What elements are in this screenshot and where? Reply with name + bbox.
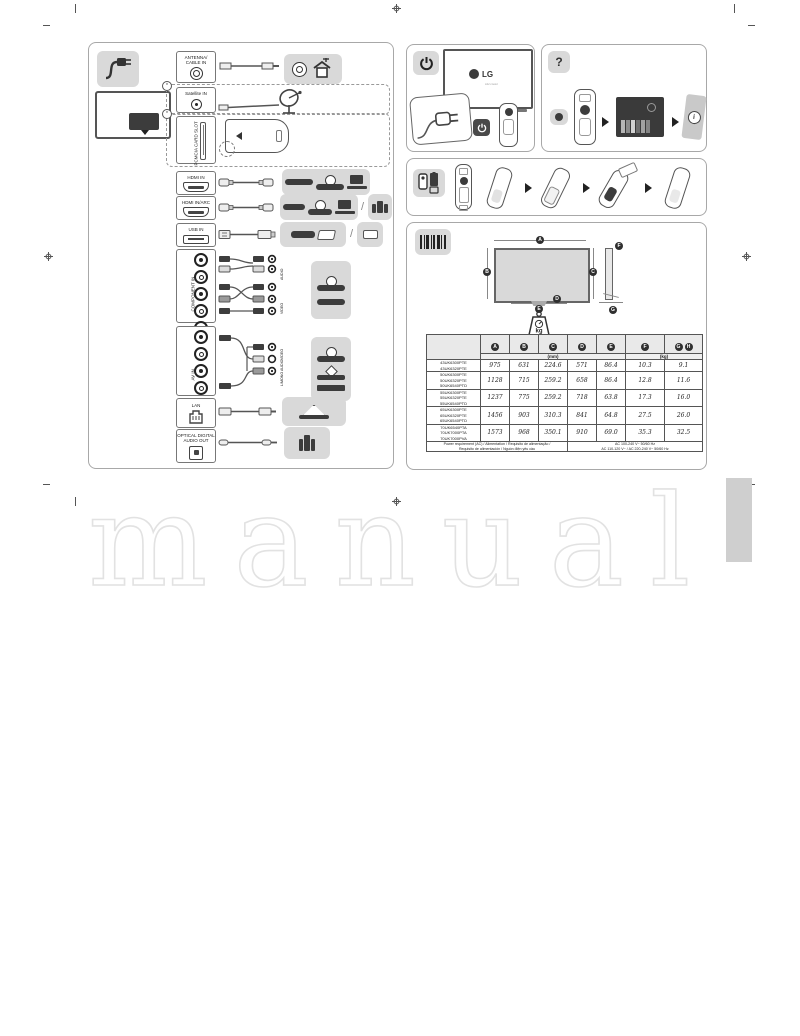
dimension-value-cell: 1456 [481,407,510,425]
router-icon [299,405,329,419]
disc-player-icon [317,347,345,362]
tv-front-diagram [494,248,590,303]
hdmi-cable-icon [218,176,278,188]
component-in-port: COMPONENT IN [176,249,216,323]
component-cables-icon [217,253,309,317]
av-in-port: AV IN [176,326,216,396]
or-slash: / [350,228,353,240]
model-names-cell: 43UK6300PTE 43UK6320PTE [427,360,481,372]
step-arrow-icon [645,183,652,193]
dim-column-header: B [510,335,539,354]
hdmi-arc-devices-chip [280,194,358,220]
dimension-value-cell: 69.0 [597,424,626,442]
power-requirement-value: AC 100-240 V~ 50/60 Hz AC 110-120 V~ / A… [568,442,703,452]
model-names-cell: 50UK6300PTE 50UK6320PTE 50UK6540PTD [427,372,481,390]
dim-column-header: GH [665,335,703,354]
audio-system-chip [368,194,392,220]
remote-button-chip [550,109,568,125]
settop-box-icon [285,179,313,185]
dimension-value-cell: 631 [510,360,539,372]
dimension-value-cell: 1237 [481,389,510,407]
model-names-cell: 70UK6540PTA 70UK7000PTA 70UK7000PVA [427,424,481,442]
usb-devices-chip [280,222,346,247]
power-requirement-label: Power requirement (AC) / Alimentation / … [427,442,568,452]
dimension-value-cell: 224.6 [539,360,568,372]
battery-step-4-icon [663,165,692,210]
dimension-value-cell: 571 [568,360,597,372]
dim-column-header: F [626,335,665,354]
dim-letter-g: G [609,306,617,314]
dimension-value-cell: 1128 [481,372,510,390]
cable-plug-icon [97,51,139,87]
registration-mark-left [44,252,53,261]
dim-letter-d: D [553,295,561,303]
remote-control-icon [499,103,518,147]
disc-player-icon [317,276,345,291]
dimension-value-cell: 12.8 [626,372,665,390]
rca-jack [194,347,208,361]
dimensions-table: ABCDEFGH(mm)(kg)43UK6300PTE 43UK6320PTE9… [426,334,703,452]
crop-dash-left-bottom [43,484,50,485]
card-detail-circle [219,141,235,157]
rca-jack [194,304,208,318]
pcmcia-label: PCMCIA CARD SLOT [194,116,199,166]
rca-jack [194,330,208,344]
speakers-icon [372,201,388,213]
specifications-barcode-icon [415,229,451,255]
dim-column-header: C [539,335,568,354]
remote-power-button-icon [473,119,490,136]
dimension-row: 50UK6300PTE 50UK6320PTE 50UK6540PTD11287… [427,372,703,390]
coax-cable-icon [219,59,281,73]
rca-jack [194,364,208,378]
tv-rear-icon [95,91,171,139]
dimension-value-cell: 16.0 [665,389,703,407]
vcr-icon [317,385,345,391]
component-audio-label: AUDIO [280,250,284,280]
tv-screen-colorbars-icon [616,97,664,137]
lg-logo-sub: Life's Good [485,83,498,86]
pcmcia-card-slot-port: PCMCIA CARD SLOT [176,116,216,164]
dimension-value-cell: 975 [481,360,510,372]
dimension-value-cell: 63.8 [597,389,626,407]
model-names-cell: 55UK6300PTE 55UK6320PTE 55UK6540PTD [427,389,481,407]
optical-cable-icon [218,437,280,447]
registration-mark-bottom [392,497,401,506]
dimension-value-cell: 35.3 [626,424,665,442]
help-icon: ? [548,51,570,73]
dimension-value-cell: 310.3 [539,407,568,425]
lan-port: LAN [176,398,216,428]
hdmi-in-label: HDMI IN [187,175,204,180]
dimension-value-cell: 718 [568,389,597,407]
memory-card-icon [317,230,336,240]
tv-side-diagram [605,248,613,300]
registration-mark-right [742,252,751,261]
dimensions-panel: A B C D E kg F G ABCDEFGH(mm)(kg)43UK630… [406,222,707,470]
remote-front-icon [455,164,472,210]
settop-box-icon [317,299,345,305]
satellite-in-port: Satellite IN [176,87,216,113]
satellite-cable-and-dish-icon [217,89,317,115]
av-devices-chip [311,337,351,401]
lan-label: LAN [192,403,201,408]
dimension-row: 70UK6540PTA 70UK7000PTA 70UK7000PVA15739… [427,424,703,442]
hdmi-devices-chip [282,169,370,195]
dimension-value-cell: 259.2 [539,389,568,407]
watermark-block [726,478,752,562]
step-arrow-icon [525,183,532,193]
optical-audio-out-port: OPTICAL DIGITAL AUDIO OUT [176,429,216,463]
optional-marker-1: * [162,81,172,91]
battery-install-panel [406,158,707,216]
dimension-row: 55UK6300PTE 55UK6320PTE 55UK6540PTD12377… [427,389,703,407]
usb-in-port: USB IN [176,223,216,247]
dimension-value-cell: 32.5 [665,424,703,442]
battery-step-2-icon [539,165,573,210]
usb-cable-icon [218,228,278,240]
dim-column-header: A [481,335,510,354]
dim-letter-f: F [615,242,623,250]
dimension-value-cell: 11.6 [665,372,703,390]
antenna-wall-socket-icon [292,62,307,77]
hdmi-port-icon [183,182,209,192]
lan-port-icon [188,410,204,424]
antenna-port-icon [190,67,203,80]
av-audio-label: L/MONO AUDIO [280,356,284,386]
dimension-value-cell: 27.5 [626,407,665,425]
component-jacks [194,253,208,335]
disc-player-icon [316,175,344,190]
step-arrow-icon [583,183,590,193]
dimension-value-cell: 10.3 [626,360,665,372]
satellite-in-label: Satellite IN [185,91,207,96]
crop-dash-left-top [43,25,50,26]
usb-port-icon [183,235,209,244]
hdmi-in-port: HDMI IN [176,171,216,195]
power-icon [413,51,439,75]
dim-letter-b: B [483,268,491,276]
ethernet-cable-icon [218,405,278,417]
rca-jack [194,381,208,395]
optical-port-icon [189,446,203,460]
power-requirement-row: Power requirement (AC) / Alimentation / … [427,442,703,452]
game-console-icon [317,367,345,380]
router-chip [282,397,346,426]
or-slash: / [361,201,364,213]
dimension-value-cell: 26.0 [665,407,703,425]
dimension-value-cell: 350.1 [539,424,568,442]
info-icon: i [687,110,701,124]
dim-column-header: D [568,335,597,354]
crop-mark-top-right [734,4,735,13]
dimension-value-cell: 910 [568,424,597,442]
rca-jack [194,253,208,267]
optical-audio-out-label: OPTICAL DIGITAL AUDIO OUT [177,433,215,443]
power-setup-panel: LG Life's Good [406,44,535,152]
optional-marker-2: * [162,109,172,119]
dimension-value-cell: 658 [568,372,597,390]
dimension-value-cell: 903 [510,407,539,425]
dimension-value-cell: 64.8 [597,407,626,425]
dimension-value-cell: 841 [568,407,597,425]
watermark: manual [88,468,716,615]
step-arrow-icon [672,117,679,127]
dimension-value-cell: 968 [510,424,539,442]
dimension-value-cell: 775 [510,389,539,407]
hdmi-arc-port-icon [183,207,209,217]
step-arrow-icon [602,117,609,127]
crop-dash-right-top [748,25,755,26]
dim-letter-c: C [589,268,597,276]
antenna-cable-in-label: ANTENNA/ CABLE IN [185,55,208,65]
dimension-value-cell: 715 [510,372,539,390]
dim-letter-a: A [536,236,544,244]
av-cables-icon [217,331,309,395]
lg-logo: LG [482,70,493,79]
usb-flash-drive-icon [363,230,378,239]
dim-column-header: E [597,335,626,354]
manual-page: * * ANTENNA/ CABLE IN Satellite IN [0,0,800,1036]
watermark-text: manual [88,468,716,615]
remote-control-icon [574,89,596,145]
batteries-icon [413,169,445,197]
disc-player-icon [308,200,332,215]
speaker-system-icon [299,435,315,451]
info-tag-icon: i [681,94,706,140]
usb-stick-chip [357,222,383,247]
laptop-icon [335,200,355,214]
satellite-port-icon [191,99,202,110]
dimension-value-cell: 86.4 [597,360,626,372]
rca-jack [194,287,208,301]
dimension-row: 43UK6300PTE 43UK6320PTE975631224.657186.… [427,360,703,372]
wall-plug-icon [409,92,473,145]
antenna-cable-in-port: ANTENNA/ CABLE IN [176,51,216,83]
help-panel: ? i [541,44,707,152]
component-video-label: VIDEO [280,284,284,314]
dimension-value-cell: 17.3 [626,389,665,407]
crop-mark-bottom-left [75,497,76,506]
rca-jack [194,270,208,284]
dimension-value-cell: 259.2 [539,372,568,390]
dimension-value-cell: 86.4 [597,372,626,390]
crop-mark-top-left [75,4,76,13]
antenna-destination-chip [284,54,342,84]
registration-mark-top [392,4,401,13]
hdmi-arc-cable-icon [218,201,278,213]
dimension-value-cell: 9.1 [665,360,703,372]
hdmi-in-arc-label: HDMI IN/ARC [182,200,210,205]
external-hdd-icon [291,231,315,238]
dimension-row: 65UK6300PTE 65UK6320PTE 65UK6540PTD14569… [427,407,703,425]
battery-step-1-icon [485,165,514,210]
usb-in-label: USB IN [188,227,203,232]
house-antenna-icon [310,57,334,81]
pcmcia-slot-icon [200,122,206,160]
model-names-cell: 65UK6300PTE 65UK6320PTE 65UK6540PTD [427,407,481,425]
connections-panel: * * ANTENNA/ CABLE IN Satellite IN [88,42,394,469]
hdmi-in-arc-port: HDMI IN/ARC [176,196,216,220]
laptop-icon [347,175,367,189]
settop-box-icon [283,204,305,210]
dimension-value-cell: 1573 [481,424,510,442]
models-column-header [427,335,481,360]
component-devices-chip [311,261,351,319]
speaker-system-chip [284,427,330,459]
